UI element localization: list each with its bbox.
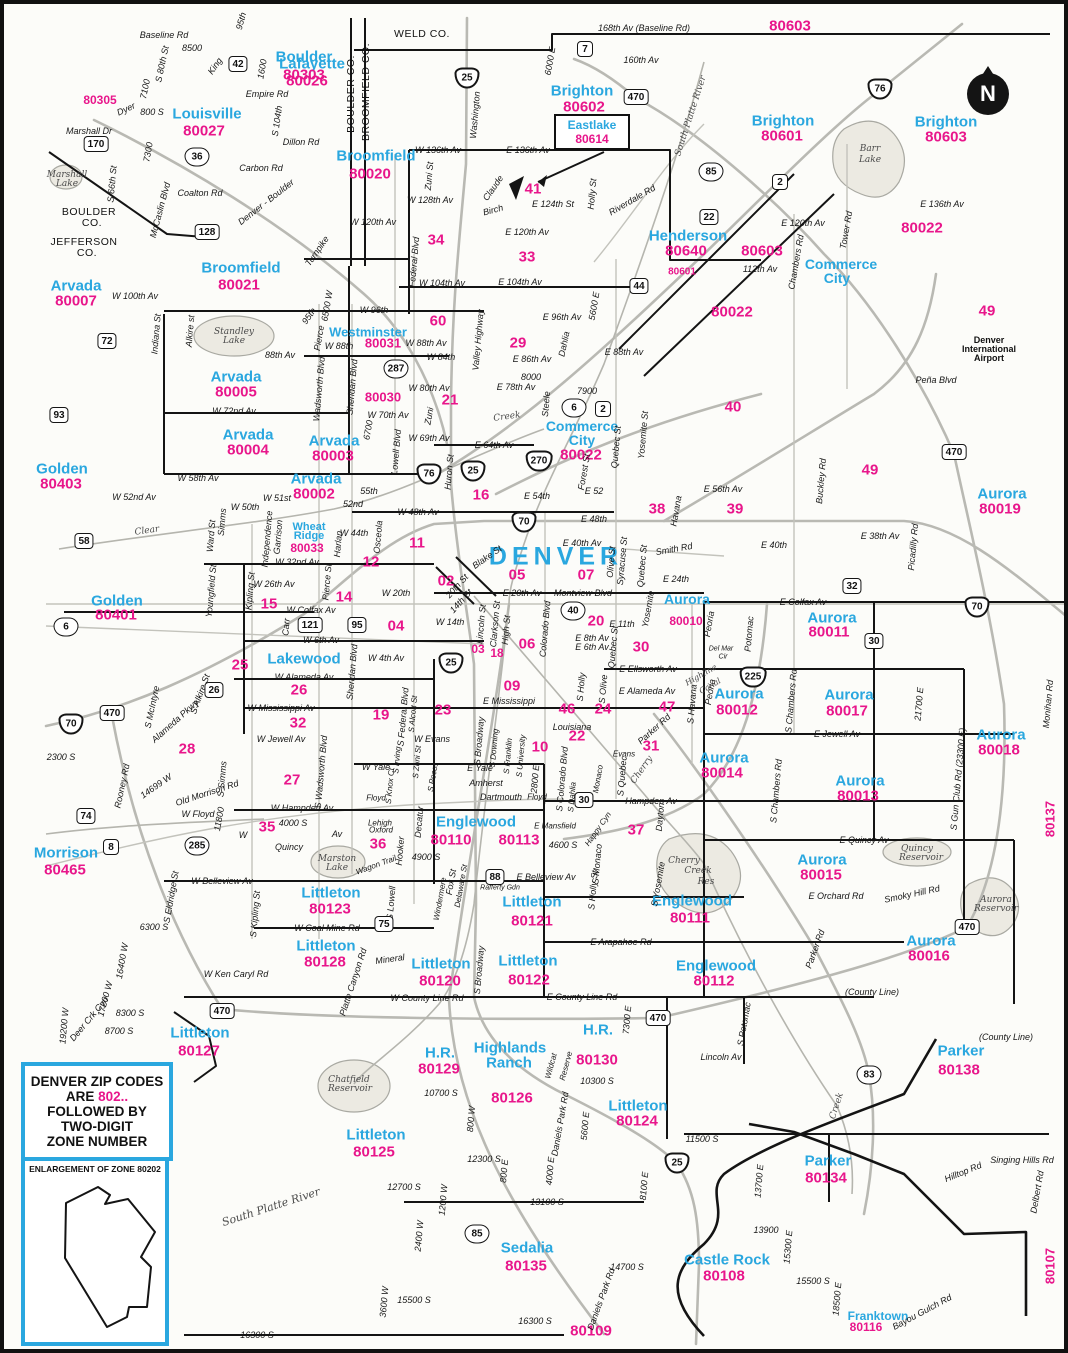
- road-label: Mineral: [375, 952, 406, 966]
- zip-code-label: 80137: [1043, 801, 1058, 837]
- zip-code-label: 80602: [563, 99, 605, 116]
- road-label: 2400 W: [413, 1220, 426, 1252]
- zone-number-label: 36: [370, 836, 387, 853]
- road-label: W: [239, 830, 248, 840]
- zip-code-label: 80004: [227, 442, 269, 459]
- city-label: Littleton: [296, 938, 355, 955]
- road-label: S Downing: [488, 728, 500, 767]
- zip-code-label: 80465: [44, 862, 86, 879]
- highway-shield-25: 25: [461, 461, 486, 482]
- road-label: 4000 S: [279, 818, 308, 828]
- city-label: Broomfield: [201, 260, 280, 277]
- zip-code-label: 80126: [491, 1090, 533, 1107]
- zone-number-label: 03: [471, 642, 484, 656]
- water-label: Lake: [223, 336, 245, 346]
- road-label: E 124th St: [532, 199, 574, 209]
- water-label: Creek: [828, 1091, 846, 1120]
- poi-label: Airport: [974, 353, 1004, 363]
- road-label: 6500 W: [319, 290, 334, 322]
- road-label: E 88th Av: [605, 347, 644, 357]
- road-label: Monihan Rd: [1041, 679, 1055, 728]
- zone-number-label: 10: [532, 739, 549, 756]
- road-label: E 86th Av: [513, 354, 552, 364]
- road-label: Picadilly Rd: [906, 523, 920, 571]
- highway-shield-470: 470: [210, 1003, 235, 1019]
- city-label: Sedalia: [501, 1240, 554, 1257]
- legend-zip-note: DENVER ZIP CODES ARE 802.. FOLLOWED BY T…: [21, 1062, 173, 1161]
- road-label: E 40th: [761, 540, 787, 550]
- road-label: W 26th Av: [253, 579, 294, 589]
- road-label: 13700 E: [753, 1164, 766, 1198]
- highway-shield-83: 83: [857, 1066, 882, 1085]
- road-label: Yosemite: [640, 590, 656, 628]
- city-label: Littleton: [301, 885, 360, 902]
- water-label: Clear: [134, 524, 160, 537]
- road-label: Lincoln Av: [700, 1052, 741, 1062]
- road-label: 8500: [182, 43, 202, 53]
- road-label: Floyd: [366, 794, 386, 803]
- road-label: E 38th Av: [861, 531, 900, 541]
- road-label: S 104th: [270, 105, 284, 137]
- road-label: McCaslin Blvd: [148, 181, 172, 239]
- city-label: Brighton: [551, 83, 613, 100]
- zone-number-label: 30: [633, 639, 650, 656]
- zip-code-label: 80021: [218, 277, 260, 294]
- road-label: 6000 E: [543, 46, 558, 76]
- road-label: E 6th Av: [575, 642, 609, 652]
- road-label: Pierce St: [320, 563, 333, 600]
- road-label: 6300 S: [140, 922, 169, 932]
- zip-code-label: 80138: [938, 1062, 980, 1079]
- road-label: S Irving: [391, 746, 402, 774]
- road-label: S 80th St: [153, 45, 170, 83]
- zip-code-label: 80027: [183, 123, 225, 140]
- zip-code-label: 80012: [716, 702, 758, 719]
- highway-shield-470: 470: [955, 919, 980, 935]
- highway-shield-470: 470: [624, 89, 649, 105]
- road-label: Hampden Av: [625, 796, 677, 806]
- road-label: 13900: [753, 1225, 778, 1235]
- north-label: N: [980, 81, 996, 107]
- road-label: S Zuni St: [411, 745, 423, 779]
- legend-line1: DENVER ZIP CODES: [27, 1074, 167, 1089]
- road-label: W Jewell Av: [257, 734, 306, 744]
- city-label: Broomfield: [336, 148, 415, 165]
- zip-code-label: 80116: [850, 1320, 883, 1334]
- road-label: 3600 W: [378, 1286, 391, 1318]
- road-label: Sheridan Blvd: [345, 644, 360, 701]
- city-label: H.R.: [425, 1045, 455, 1062]
- road-label: Osceola: [372, 520, 385, 554]
- road-label: W 104th Av: [419, 278, 465, 288]
- highway-shield-2: 2: [595, 401, 611, 417]
- road-label: 160th Av: [623, 55, 658, 65]
- road-label: Peña Blvd: [915, 375, 956, 385]
- road-label: Baseline Rd: [140, 30, 189, 40]
- highway-shield-8: 8: [103, 839, 119, 855]
- road-label: E 104th Av: [498, 277, 542, 287]
- highway-shield-121: 121: [298, 617, 323, 633]
- zip-code-label: 80011: [809, 624, 850, 641]
- highway-shield-470: 470: [942, 444, 967, 460]
- road-label: 11500 S: [686, 1134, 719, 1144]
- road-label: Colorado Blvd: [538, 600, 553, 657]
- city-label: Littleton: [411, 956, 470, 973]
- road-label: Evans: [613, 750, 635, 759]
- zip-code-label: 80005: [215, 384, 257, 401]
- road-label: S Gun Club Rd (23300 E): [949, 727, 968, 830]
- highway-shield-30: 30: [864, 633, 883, 649]
- road-label: Dyer: [115, 100, 136, 117]
- zip-code-label: 80112: [694, 973, 735, 990]
- road-label: E 120th Av: [505, 227, 549, 237]
- road-label: W 96th: [360, 305, 389, 315]
- road-label: E 64th Av: [475, 440, 514, 450]
- city-label: Englewood: [436, 814, 516, 831]
- water-label: Res: [698, 877, 715, 887]
- road-label: E Mansfield: [534, 822, 576, 831]
- highway-shield-170: 170: [84, 136, 109, 152]
- road-label: S Chambers Rd: [783, 669, 799, 734]
- zone-number-label: 11: [409, 535, 425, 552]
- road-label: W 100th Av: [112, 291, 158, 301]
- zip-code-label: 80015: [800, 867, 842, 884]
- water-label: Lake: [859, 155, 881, 165]
- road-label: E 120th Av: [781, 218, 825, 228]
- denver-zip-code-map: Eastlake 80614 N DENVER ZIP CODES ARE 80…: [0, 0, 1068, 1353]
- road-label: Decatur: [413, 806, 426, 838]
- water-label: Lake: [326, 863, 348, 873]
- road-label: E 136th Av: [506, 145, 550, 155]
- road-label: S Quebec: [615, 756, 628, 797]
- road-label: Dillon Rd: [283, 137, 320, 147]
- zip-code-label: 80305: [83, 93, 116, 107]
- road-label: W 120th Av: [350, 217, 396, 227]
- north-arrow-pointer: [979, 66, 997, 80]
- road-label: E Orchard Rd: [808, 891, 863, 901]
- road-label: Marshall Dr: [66, 126, 112, 136]
- road-label: E Belleview Av: [516, 872, 575, 882]
- zone-number-label: 49: [979, 303, 996, 320]
- road-label: W 51st: [263, 493, 291, 503]
- zip-code-label: 80135: [505, 1258, 547, 1275]
- road-label: W 48th Av: [397, 507, 438, 517]
- road-label: 2800 E: [529, 764, 541, 793]
- zip-code-label: 80031: [365, 336, 401, 351]
- city-label: Parker: [805, 1153, 852, 1170]
- water-label: Reservoir: [974, 904, 1018, 914]
- road-label: (County Line): [979, 1032, 1033, 1042]
- highway-shield-285: 285: [185, 837, 210, 856]
- road-label: W 14th: [436, 617, 465, 627]
- road-label: Potomac: [742, 616, 755, 652]
- county-label: WELD CO.: [394, 28, 450, 40]
- road-label: Reserve: [558, 1050, 574, 1081]
- road-label: Floyd: [527, 793, 547, 802]
- road-label: S Olive: [597, 674, 609, 704]
- road-label: Del Mar: [709, 646, 734, 653]
- road-label: S Broadway: [472, 945, 486, 994]
- road-label: 4000 E: [544, 1156, 556, 1185]
- road-label: E 96th Av: [543, 312, 582, 322]
- road-label: Rafferty Gdn: [480, 885, 520, 892]
- zone-number-label: 18: [490, 646, 503, 660]
- zone-number-label: 07: [578, 567, 595, 584]
- city-label: Englewood: [652, 893, 732, 910]
- road-label: Zuni: [423, 407, 436, 426]
- highway-shield-36: 36: [185, 148, 210, 167]
- water-label: South Platte River: [673, 75, 708, 158]
- road-label: W Yale: [362, 762, 390, 772]
- road-label: 88th Av: [265, 350, 295, 360]
- road-label: E Arapahoe Rd: [590, 937, 651, 947]
- city-label: Aurora: [824, 687, 873, 704]
- city-label: Littleton: [498, 953, 557, 970]
- city-label: H.R.: [583, 1022, 613, 1039]
- city-label: Morrison: [34, 845, 98, 862]
- road-label: Peoria: [702, 610, 716, 637]
- zone-number-label: 09: [504, 678, 521, 695]
- road-label: Kipling St: [243, 572, 256, 611]
- highway-shield-70: 70: [59, 714, 84, 735]
- road-label: Indiana St: [149, 313, 162, 354]
- road-label: E Quincy Av: [839, 835, 888, 845]
- city-label: Aurora: [664, 591, 710, 607]
- zip-code-label: 80108: [703, 1268, 745, 1285]
- road-label: Windermere: [432, 877, 448, 921]
- road-label: 19200 W: [57, 1008, 70, 1045]
- road-label: Zuni St: [423, 161, 435, 190]
- zone-number-label: 04: [388, 618, 405, 635]
- zip-code-label: 80403: [40, 476, 82, 493]
- road-label: (County Line): [845, 987, 899, 997]
- road-label: E 136th Av: [920, 199, 964, 209]
- road-label: Buckley Rd: [814, 458, 828, 504]
- road-label: Av: [332, 829, 342, 839]
- road-label: Lincoln St: [474, 604, 487, 644]
- road-label: E Colfax Av: [780, 597, 827, 607]
- road-label: 1200 W: [437, 1184, 450, 1216]
- road-label: W 88th Av: [405, 338, 446, 348]
- zone-number-label: 46: [559, 701, 576, 718]
- zone-number-label: 14: [336, 589, 353, 606]
- eastlake-zip-label: 80614: [557, 132, 627, 146]
- zip-code-label: 80603: [925, 129, 967, 146]
- road-label: Dayton: [654, 802, 666, 831]
- road-label: 14699 W: [138, 772, 173, 801]
- road-label: Ward St: [205, 519, 218, 552]
- road-label: Washington: [468, 91, 482, 139]
- city-label: Aurora: [714, 686, 763, 703]
- road-label: 10700 S: [424, 1088, 458, 1098]
- road-label: 168th Av (Baseline Rd): [598, 23, 690, 33]
- zip-code-label: 80030: [365, 390, 401, 405]
- road-label: 52nd: [343, 499, 363, 509]
- zip-code-label: 80111: [670, 910, 710, 927]
- road-label: 4900 S: [412, 852, 441, 862]
- road-label: 800 E: [498, 1159, 510, 1183]
- road-label: Youngfield St: [204, 564, 219, 618]
- road-label: W 128th Av: [407, 195, 453, 205]
- road-label: 7300 E: [621, 1005, 633, 1034]
- road-label: Chambers Rd: [786, 234, 805, 290]
- water-label: Lake: [56, 179, 78, 189]
- zip-code-label: 80601: [761, 128, 803, 145]
- city-label: City: [824, 270, 850, 286]
- road-label: W Belleview Av: [191, 876, 253, 886]
- road-label: Quebec St: [635, 544, 649, 587]
- highway-shield-75: 75: [374, 916, 393, 932]
- zip-code-label: 80122: [508, 972, 550, 989]
- city-label: Littleton: [346, 1127, 405, 1144]
- road-label: Cir: [719, 654, 728, 661]
- zone-number-label: 28: [179, 741, 196, 758]
- road-label: Harlan: [332, 530, 344, 557]
- zip-code-label: 80123: [309, 901, 351, 918]
- road-label: Delbert Rd: [1028, 1170, 1045, 1214]
- road-label: Hilltop Rd: [943, 1160, 983, 1184]
- road-label: E Alameda Av: [619, 686, 675, 696]
- road-label: 16300 S: [240, 1330, 274, 1340]
- zip-code-label: 80128: [304, 954, 346, 971]
- zip-code-label: 80124: [616, 1113, 658, 1130]
- zip-code-label: 80013: [837, 788, 879, 805]
- county-label: CO.: [82, 217, 102, 229]
- highway-shield-70: 70: [512, 512, 537, 533]
- water-label: Creek: [493, 410, 521, 424]
- road-label: 18500 E: [831, 1282, 844, 1316]
- zip-code-label: 80020: [349, 166, 391, 183]
- zip-code-label: 80107: [1043, 1248, 1058, 1284]
- road-label: S Havana: [685, 684, 698, 724]
- road-label: 15500 S: [796, 1276, 830, 1286]
- highway-shield-287: 287: [384, 360, 409, 379]
- zone-number-label: 05: [509, 567, 526, 584]
- zone-number-label: 25: [232, 657, 249, 674]
- eastlake-city-label: Eastlake: [557, 118, 627, 132]
- road-label: W County Line Rd: [390, 993, 463, 1003]
- zone-number-label: 60: [430, 313, 447, 330]
- road-label: King: [206, 56, 225, 76]
- zone-number-label: 15: [261, 596, 278, 613]
- zip-code-label: 80640: [665, 243, 707, 260]
- road-label: Parker Rd: [803, 928, 826, 969]
- zip-code-label: 80010: [669, 614, 702, 628]
- zone-number-label: 16: [473, 487, 490, 504]
- zone-number-label: 40: [725, 399, 742, 416]
- road-label: Carr: [280, 618, 291, 636]
- road-label: S University: [515, 734, 528, 777]
- road-label: E 40th Av: [563, 538, 602, 548]
- zip-code-label: 80601: [668, 267, 696, 278]
- highway-shield-32: 32: [842, 578, 861, 594]
- highway-shield-470: 470: [646, 1010, 671, 1026]
- zone-number-label: 06: [519, 636, 536, 653]
- road-label: E 56th Av: [704, 484, 743, 494]
- road-label: 16400 W: [114, 942, 130, 979]
- road-label: Turnpike: [303, 234, 331, 268]
- zip-code-label: 80014: [701, 765, 743, 782]
- road-label: 6700: [361, 419, 374, 440]
- road-label: W Ken Caryl Rd: [204, 969, 269, 979]
- road-label: W 6th Av: [303, 635, 339, 645]
- road-label: 12300 S: [467, 1154, 501, 1164]
- road-label: Oxford: [369, 826, 393, 835]
- zip-code-label: 80603: [741, 243, 783, 260]
- water-label: Reservoir: [899, 853, 943, 863]
- zip-code-label: 80120: [419, 973, 461, 990]
- zip-code-label: 80129: [418, 1061, 460, 1078]
- city-label: Louisville: [172, 106, 241, 123]
- legend-enlargement: ENLARGEMENT OF ZONE 80202: [21, 1156, 169, 1346]
- zip-code-label: 80401: [95, 607, 137, 624]
- road-label: W 20th: [382, 588, 411, 598]
- road-label: Smoky Hill Rd: [883, 883, 940, 905]
- road-label: Valley Highway: [470, 309, 485, 371]
- road-label: 112th Av: [743, 264, 777, 274]
- road-label: W Hampden Av: [271, 803, 334, 813]
- highway-shield-7: 7: [577, 41, 593, 57]
- zip-code-label: 80110: [431, 832, 472, 849]
- zone-number-label: 32: [290, 715, 307, 732]
- highway-shield-76: 76: [417, 464, 442, 485]
- road-label: High St: [500, 615, 513, 645]
- road-label: Yosemite St: [636, 411, 650, 460]
- highway-shield-6: 6: [562, 399, 587, 418]
- north-arrow-icon: N: [967, 73, 1009, 115]
- road-label: Birch: [482, 203, 504, 218]
- zip-code-label: 80022: [711, 304, 753, 321]
- road-label: W 4th Av: [368, 653, 404, 663]
- road-label: S Kipling St: [248, 890, 262, 937]
- road-label: S Holly St: [586, 870, 599, 910]
- road-label: S Wadsworth Blvd: [313, 735, 329, 809]
- road-label: Tower Rd: [838, 210, 854, 249]
- county-label: BOULDER CO.: [345, 55, 357, 133]
- road-label: E 52: [585, 486, 604, 496]
- road-label: W Evans: [414, 734, 450, 744]
- road-label: E Mississippi: [483, 696, 535, 706]
- road-label: 2300 S: [47, 752, 76, 762]
- highway-shield-30: 30: [574, 792, 593, 808]
- zip-code-label: 80007: [55, 293, 97, 310]
- zone-number-label: 35: [259, 819, 276, 836]
- zone-number-label: 26: [291, 682, 308, 699]
- road-label: E 20th Av: [503, 588, 542, 598]
- zip-code-label: 80127: [178, 1043, 220, 1060]
- road-label: Singing Hills Rd: [990, 1155, 1054, 1165]
- water-label: Cherry: [629, 754, 655, 786]
- road-label: 4600 S: [549, 840, 578, 850]
- road-label: 95th: [300, 306, 318, 326]
- zip-code-label: 80016: [908, 948, 950, 965]
- zone-number-label: 12: [363, 554, 380, 571]
- road-label: Steele: [540, 391, 552, 417]
- road-label: Denver - Boulder: [236, 177, 296, 227]
- zip-code-label: 80603: [769, 18, 811, 35]
- zip-code-label: 80113: [499, 832, 540, 849]
- road-label: S McIntyre: [143, 685, 162, 729]
- highway-shield-72: 72: [97, 333, 116, 349]
- road-label: S Chambers Rd: [768, 759, 784, 824]
- road-label: W 136th Av: [415, 145, 461, 155]
- road-label: 10300 S: [580, 1076, 614, 1086]
- road-label: 8100 E: [638, 1171, 650, 1200]
- road-label: 5600 E: [579, 1111, 591, 1140]
- city-label: Parker: [938, 1043, 985, 1060]
- highway-shield-25: 25: [665, 1153, 690, 1174]
- zip-code-label: 80002: [293, 486, 335, 503]
